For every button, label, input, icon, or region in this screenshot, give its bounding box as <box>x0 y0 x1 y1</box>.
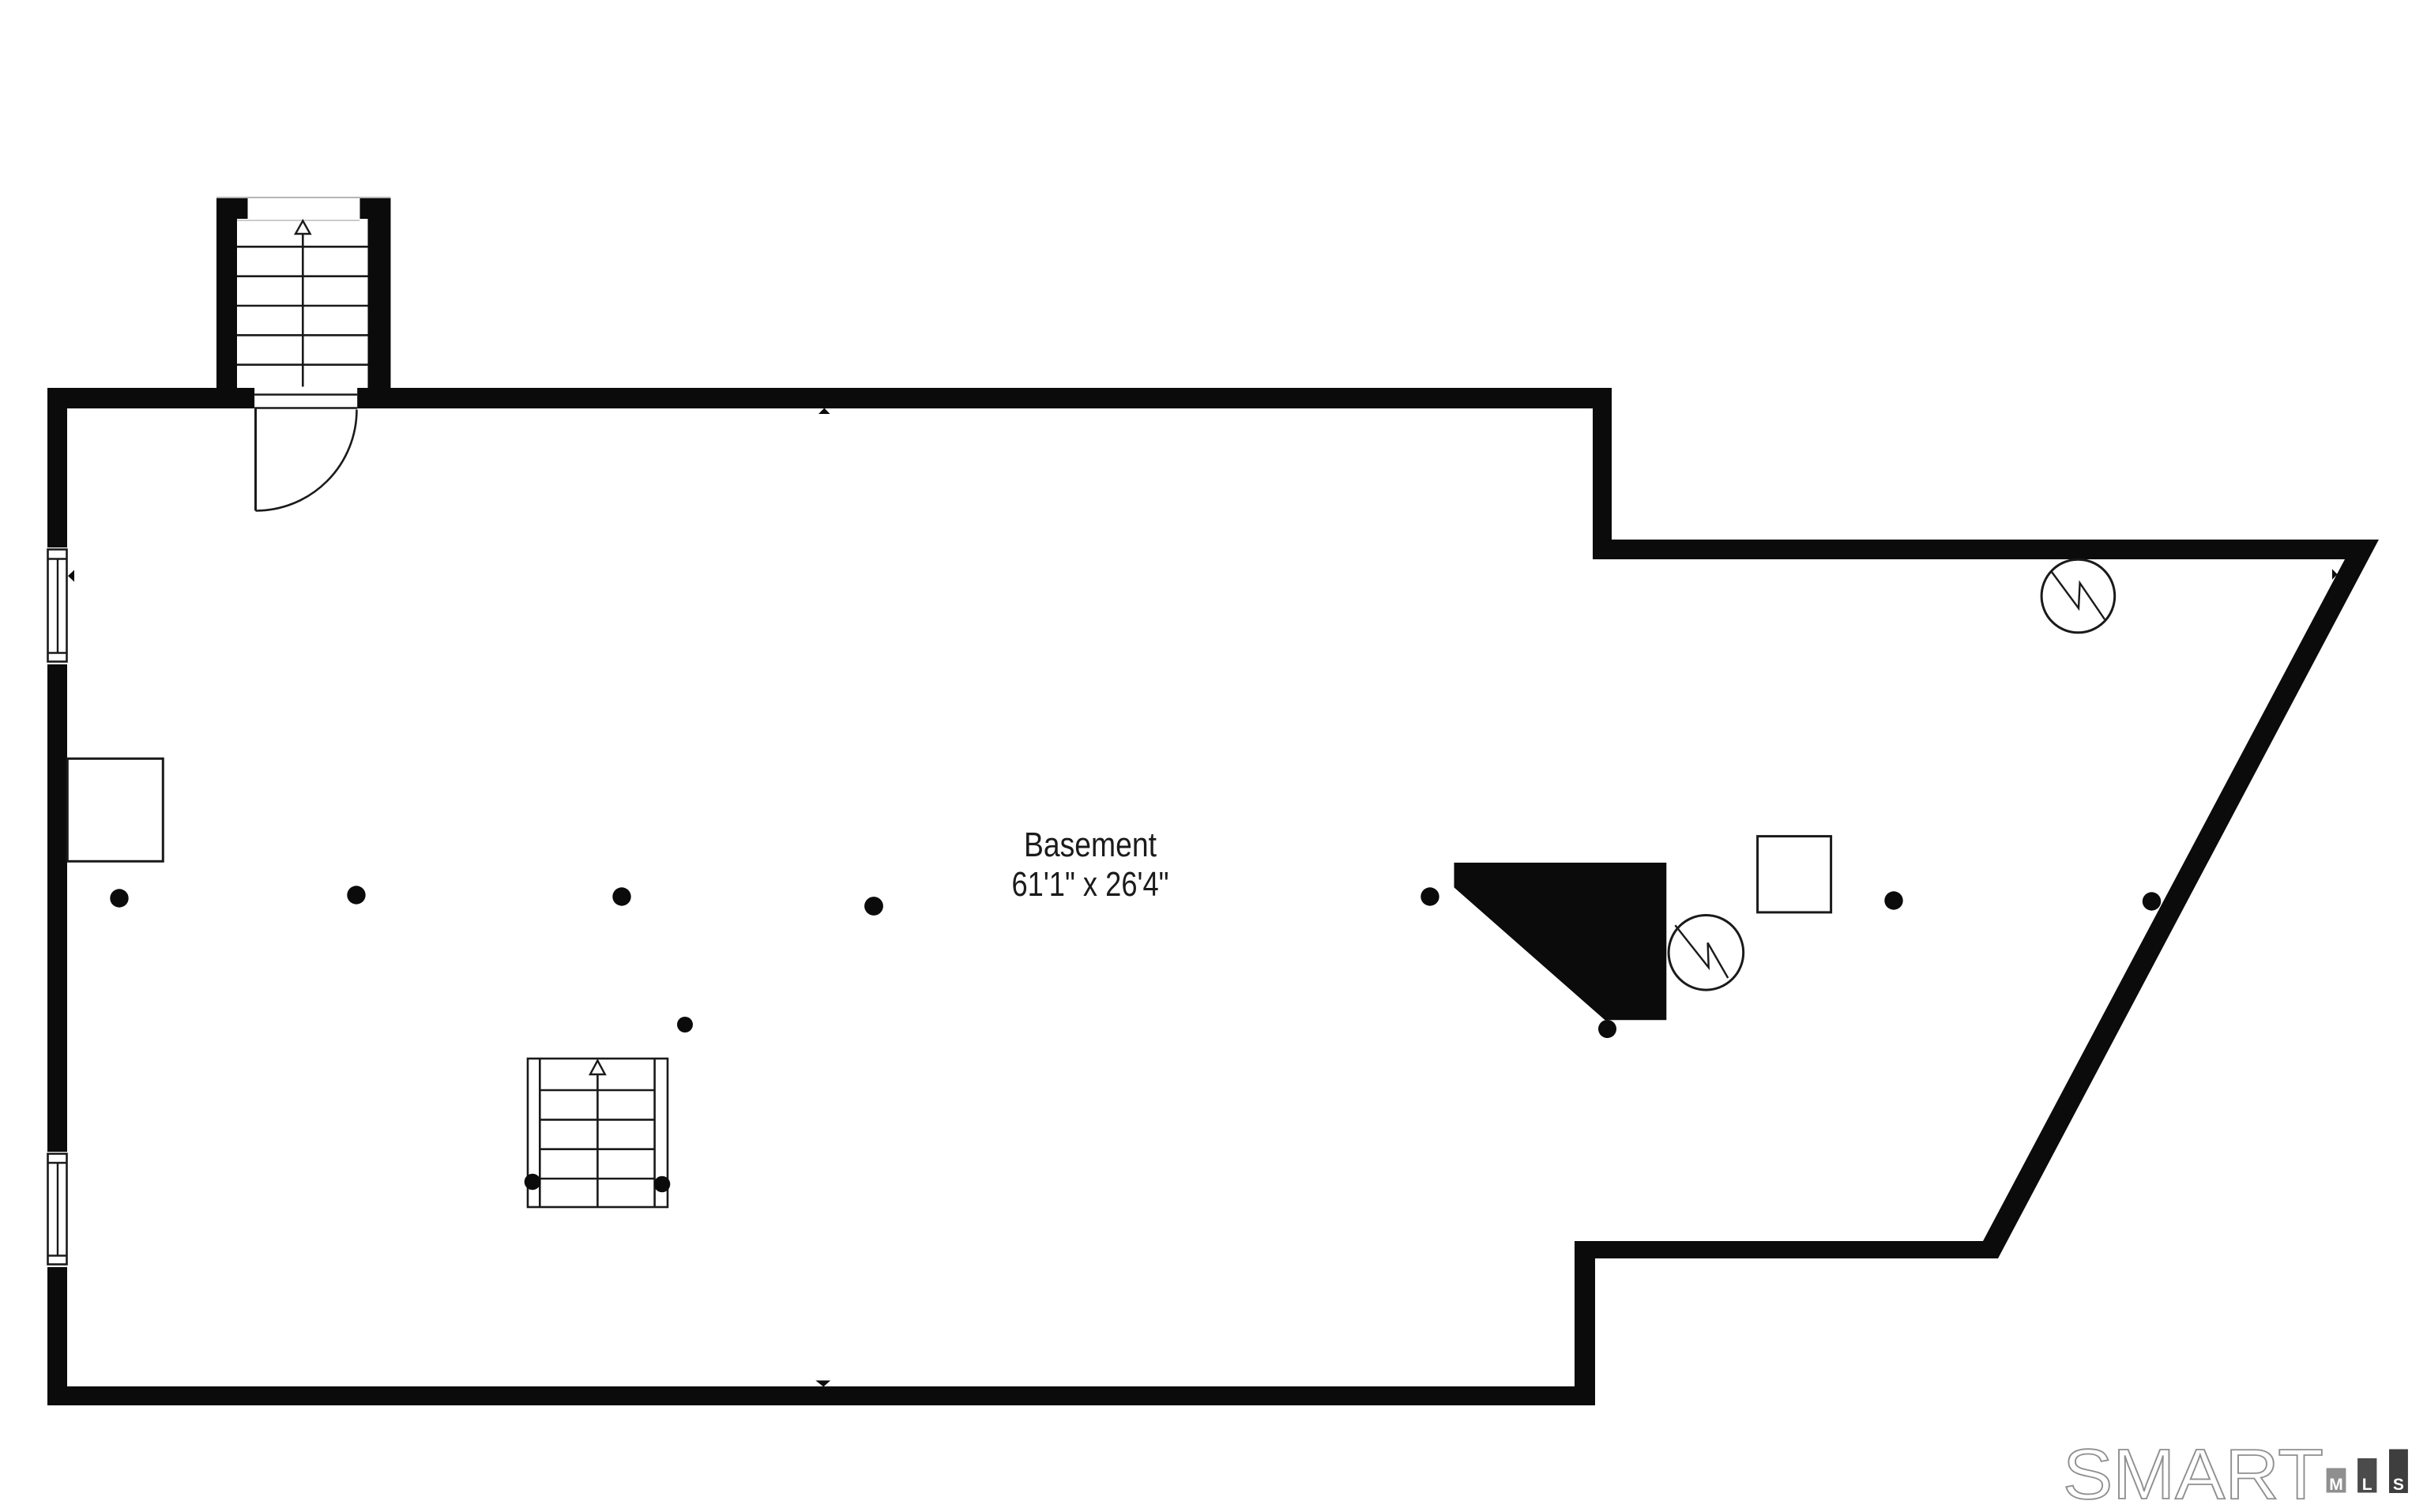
svg-text:Basement: Basement <box>1024 826 1157 864</box>
svg-text:S: S <box>2393 1476 2404 1494</box>
svg-text:SMART: SMART <box>2063 1435 2324 1512</box>
svg-text:61'1" x 26'4": 61'1" x 26'4" <box>1012 865 1169 904</box>
svg-text:M: M <box>2329 1476 2343 1494</box>
svg-text:L: L <box>2362 1476 2372 1494</box>
